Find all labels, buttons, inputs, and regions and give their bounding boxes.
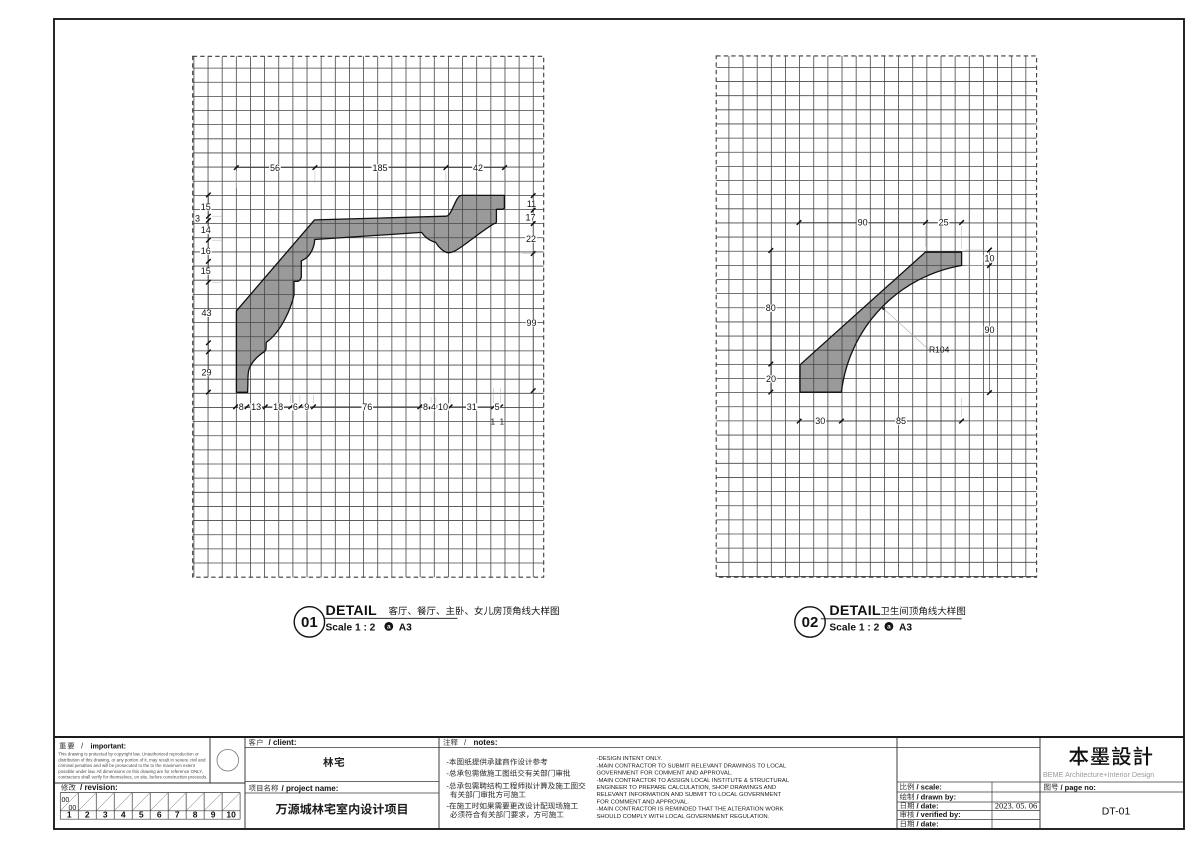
svg-text:BEME Architecture+Interior D: BEME Architecture+Interior Design bbox=[1043, 770, 1154, 779]
svg-text:4: 4 bbox=[121, 809, 126, 819]
svg-text:2: 2 bbox=[85, 809, 90, 819]
svg-text:3: 3 bbox=[103, 809, 108, 819]
svg-text:8: 8 bbox=[423, 402, 428, 412]
svg-text:-MAIN CONTRACTOR TO ASSIGN LOC: -MAIN CONTRACTOR TO ASSIGN LOCAL INSTITU… bbox=[597, 778, 790, 784]
svg-text:RELEVANT INFORMATION AND SUBMI: RELEVANT INFORMATION AND SUBMIT TO LOCAL… bbox=[597, 792, 782, 798]
svg-text:22: 22 bbox=[526, 234, 536, 244]
svg-text:2023. 05. 06: 2023. 05. 06 bbox=[995, 800, 1038, 810]
svg-text:99: 99 bbox=[526, 318, 536, 328]
svg-text:43: 43 bbox=[201, 308, 211, 318]
svg-text:/ revision:: / revision: bbox=[80, 783, 118, 792]
svg-text:A3: A3 bbox=[399, 622, 412, 633]
svg-text:/ drawn by:: / drawn by: bbox=[917, 793, 957, 802]
svg-text:contractors shall verify for t: contractors shall verify for themselves,… bbox=[58, 775, 207, 780]
svg-text:A3: A3 bbox=[899, 622, 912, 633]
svg-text:17: 17 bbox=[525, 212, 535, 222]
svg-text:00: 00 bbox=[69, 805, 77, 812]
svg-text:31: 31 bbox=[467, 402, 477, 412]
svg-text:7: 7 bbox=[175, 809, 180, 819]
svg-text:/ date:: / date: bbox=[917, 801, 939, 810]
svg-text:This drawing is protected by c: This drawing is protected by copyright l… bbox=[58, 752, 199, 757]
svg-text:-MAIN CONTRACTOR TO SUBMIT REL: -MAIN CONTRACTOR TO SUBMIT RELEVANT DRAW… bbox=[597, 763, 787, 769]
svg-text:notes:: notes: bbox=[474, 738, 498, 747]
svg-text:02: 02 bbox=[802, 614, 819, 631]
svg-text:R104: R104 bbox=[929, 345, 950, 355]
svg-text:20: 20 bbox=[766, 374, 776, 384]
svg-text:30: 30 bbox=[815, 416, 825, 426]
svg-text:9: 9 bbox=[304, 402, 309, 412]
svg-text:9: 9 bbox=[211, 809, 216, 819]
svg-text:15: 15 bbox=[201, 202, 211, 212]
svg-text:80: 80 bbox=[766, 303, 776, 313]
svg-text:important:: important: bbox=[91, 742, 127, 751]
svg-text:10: 10 bbox=[226, 809, 236, 819]
svg-text:/ client:: / client: bbox=[269, 738, 297, 747]
svg-text:a: a bbox=[387, 624, 391, 631]
svg-text:possible under law. All dimens: possible under law. All dimensions on th… bbox=[58, 769, 203, 774]
svg-text:ENGINEER TO PREPARE CALCULATIO: ENGINEER TO PREPARE CALCULATION, SHOP DR… bbox=[597, 785, 777, 791]
svg-text:-MAIN CONTRACTOR IS REMINDED T: -MAIN CONTRACTOR IS REMINDED THAT THE AL… bbox=[597, 807, 784, 813]
svg-text:/ page no:: / page no: bbox=[1061, 783, 1096, 792]
svg-text:14: 14 bbox=[201, 225, 211, 235]
svg-text:FOR COMMENT AND APPROVAL.: FOR COMMENT AND APPROVAL. bbox=[597, 799, 690, 805]
svg-text:85: 85 bbox=[896, 416, 906, 426]
svg-text:6: 6 bbox=[157, 809, 162, 819]
svg-text:1: 1 bbox=[500, 418, 505, 427]
svg-text:00: 00 bbox=[62, 797, 70, 804]
svg-text:Scale 1 : 2: Scale 1 : 2 bbox=[326, 622, 376, 633]
svg-text:/ scale:: / scale: bbox=[917, 783, 942, 792]
svg-text:56: 56 bbox=[270, 163, 280, 173]
svg-text:6: 6 bbox=[293, 402, 298, 412]
svg-text:Scale 1 : 2: Scale 1 : 2 bbox=[829, 622, 879, 633]
svg-text:a: a bbox=[887, 624, 891, 631]
svg-text:25: 25 bbox=[939, 218, 949, 228]
svg-text:42: 42 bbox=[473, 163, 483, 173]
svg-text:DETAIL: DETAIL bbox=[829, 603, 881, 619]
svg-text:16: 16 bbox=[201, 246, 211, 256]
svg-text:5: 5 bbox=[495, 402, 500, 412]
svg-text:GOVERNMENT FOR COMMENT AND APP: GOVERNMENT FOR COMMENT AND APPROVAL. bbox=[597, 771, 734, 777]
svg-text:01: 01 bbox=[301, 614, 318, 631]
svg-text:8: 8 bbox=[239, 402, 244, 412]
svg-text:/ project name:: / project name: bbox=[282, 784, 339, 793]
svg-text:/ date:: / date: bbox=[917, 820, 939, 829]
svg-text:76: 76 bbox=[362, 402, 372, 412]
svg-text:18: 18 bbox=[273, 402, 283, 412]
svg-text:15: 15 bbox=[201, 266, 211, 276]
svg-text:90: 90 bbox=[858, 218, 868, 228]
svg-text:-DESIGN INTENT ONLY.: -DESIGN INTENT ONLY. bbox=[597, 756, 663, 762]
svg-text:29: 29 bbox=[201, 368, 211, 378]
svg-text:DETAIL: DETAIL bbox=[326, 603, 378, 619]
svg-text:distribution of this drawing,: distribution of this drawing, or any por… bbox=[58, 757, 206, 762]
svg-text:5: 5 bbox=[139, 809, 144, 819]
svg-text:SHOULD COMPLY WITH LOCAL GOVER: SHOULD COMPLY WITH LOCAL GOVERNMENT REGU… bbox=[597, 814, 770, 820]
svg-text:10: 10 bbox=[984, 254, 994, 264]
svg-text:90: 90 bbox=[984, 325, 994, 335]
svg-text:11: 11 bbox=[527, 199, 536, 209]
svg-text:10: 10 bbox=[438, 402, 448, 412]
svg-text:8: 8 bbox=[193, 809, 198, 819]
svg-text:/ verified by:: / verified by: bbox=[917, 810, 961, 819]
svg-text:13: 13 bbox=[251, 402, 261, 412]
svg-text:criminal penalties and will be: criminal penalties and will be prosecute… bbox=[58, 763, 195, 768]
svg-text:185: 185 bbox=[372, 163, 387, 173]
svg-text:4: 4 bbox=[431, 402, 436, 412]
svg-text:1: 1 bbox=[491, 418, 496, 427]
svg-text:3: 3 bbox=[195, 213, 200, 223]
svg-text:DT-01: DT-01 bbox=[1102, 805, 1131, 817]
